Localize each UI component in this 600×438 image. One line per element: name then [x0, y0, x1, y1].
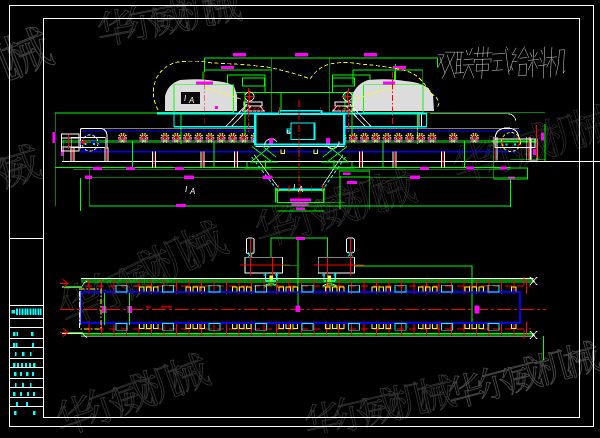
svg-text:A: A — [188, 96, 194, 105]
svg-text:A: A — [297, 185, 303, 194]
svg-text:B: B — [287, 130, 291, 136]
svg-text:A: A — [189, 187, 195, 196]
